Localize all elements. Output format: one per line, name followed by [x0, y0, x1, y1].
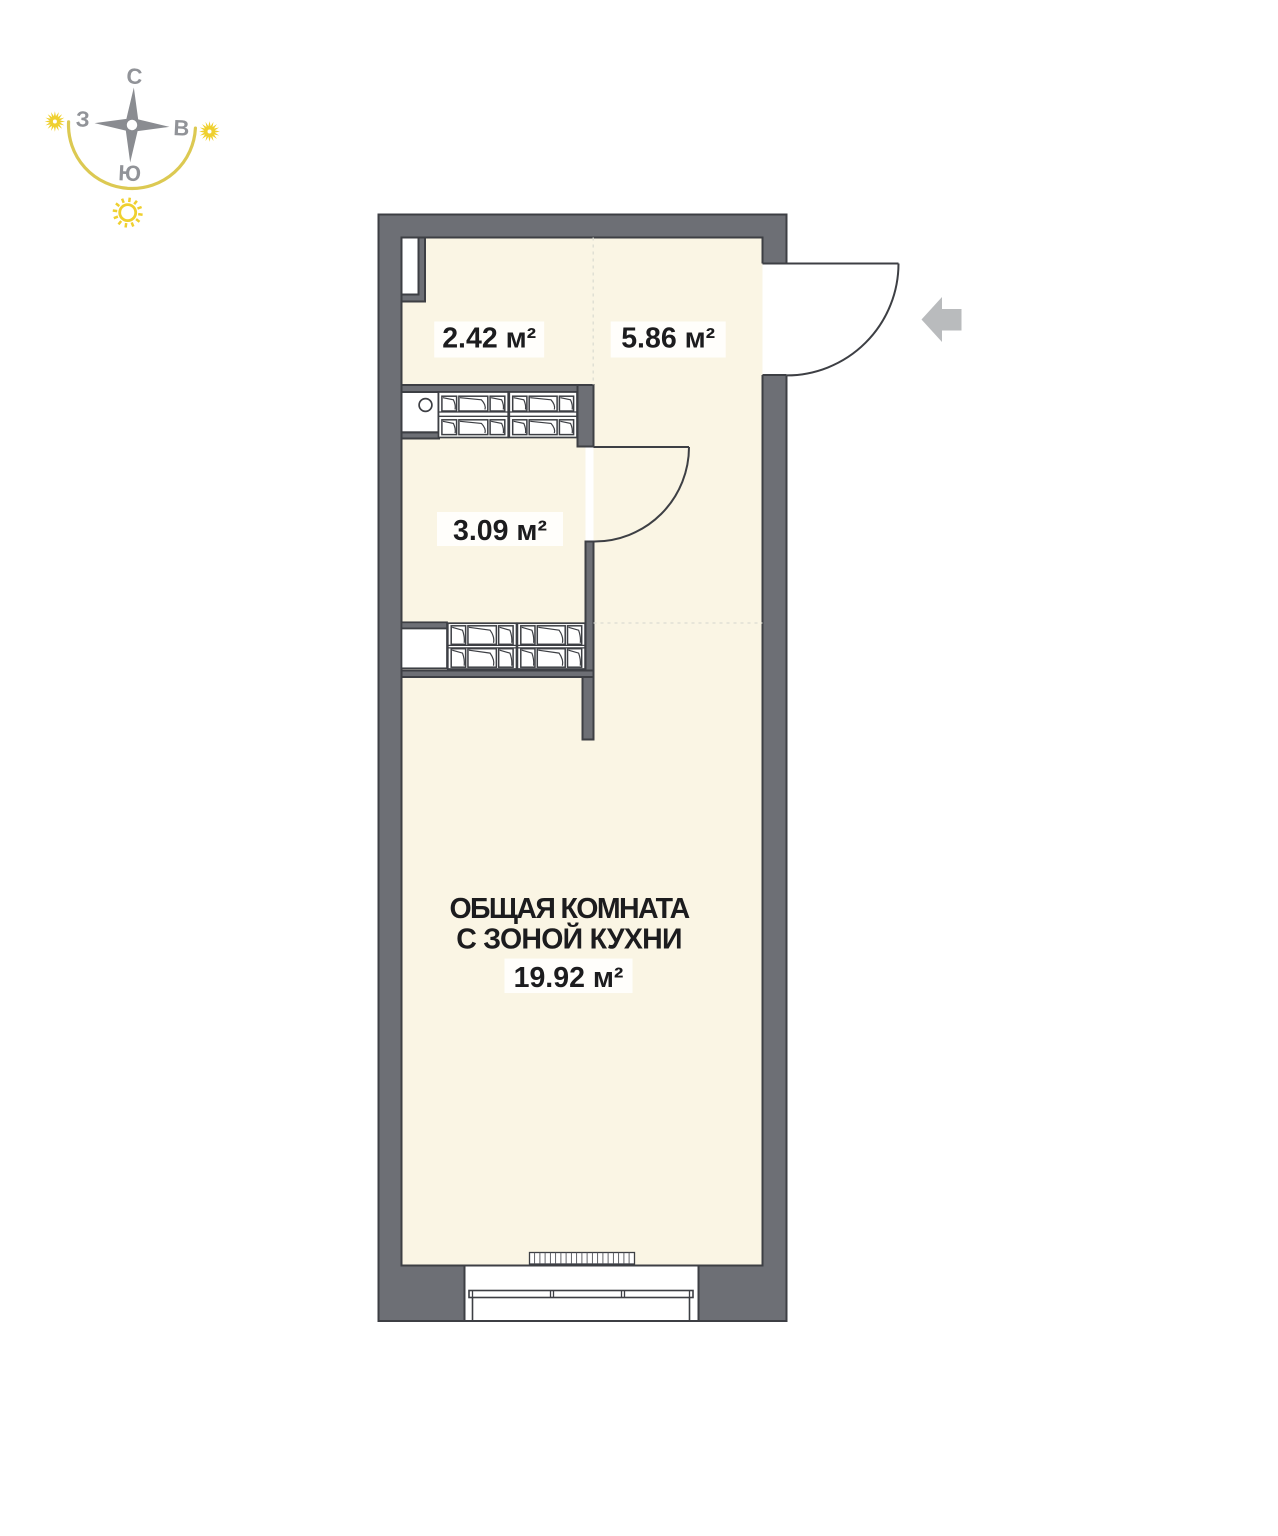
- svg-text:С: С: [126, 63, 143, 89]
- svg-text:С ЗОНОЙ КУХНИ: С ЗОНОЙ КУХНИ: [456, 923, 681, 956]
- svg-text:5.86 м²: 5.86 м²: [621, 322, 715, 354]
- svg-text:ОБЩАЯ КОМНАТА: ОБЩАЯ КОМНАТА: [449, 893, 689, 925]
- svg-text:Ю: Ю: [118, 160, 142, 186]
- svg-text:2.42 м²: 2.42 м²: [442, 322, 536, 354]
- svg-text:В: В: [173, 115, 190, 141]
- svg-text:З: З: [75, 106, 90, 132]
- svg-text:19.92 м²: 19.92 м²: [514, 962, 624, 994]
- svg-text:3.09 м²: 3.09 м²: [453, 515, 547, 547]
